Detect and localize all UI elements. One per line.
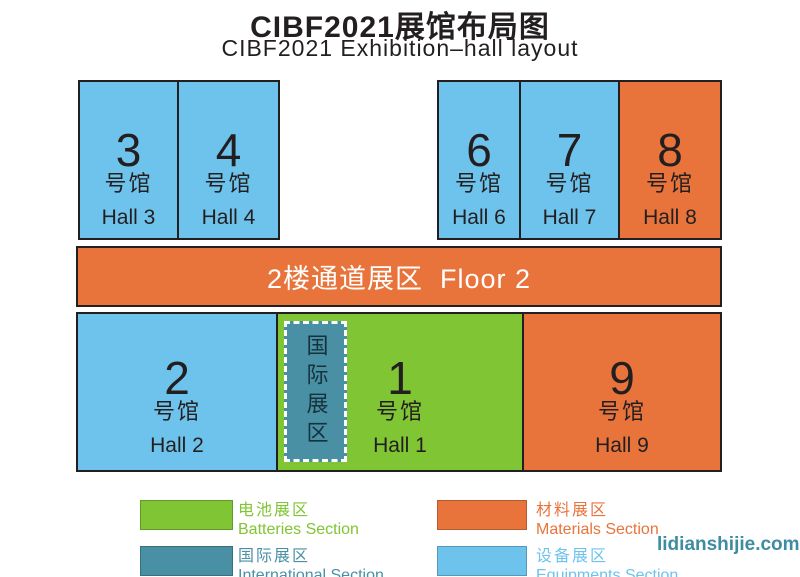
exhibition-layout-diagram: CIBF2021展馆布局图 CIBF2021 Exhibition–hall l…: [0, 0, 800, 577]
hall-1-number: 1: [387, 358, 413, 398]
hall-4-label: Hall 4: [202, 206, 256, 230]
page-subtitle: CIBF2021 Exhibition–hall layout: [0, 35, 800, 62]
hall-2-label: Hall 2: [150, 434, 204, 458]
hall-1-label: Hall 1: [373, 434, 427, 458]
hall-block-6-7-8: 6 号馆 Hall 6 7 号馆 Hall 7 8 号馆 Hall 8: [437, 80, 722, 240]
legend-label-international: 国际展区 International Section: [238, 547, 384, 577]
hall-1-unit: 号馆: [376, 398, 424, 425]
hall-4-number: 4: [216, 130, 242, 170]
international-area-box: 国际展区: [284, 321, 347, 462]
hall-4: 4 号馆 Hall 4: [179, 82, 278, 238]
hall-9-label: Hall 9: [595, 434, 649, 458]
hall-3-number: 3: [116, 130, 142, 170]
legend-international-cn: 国际展区: [238, 547, 384, 566]
legend-international-en: International Section: [238, 566, 384, 577]
hall-3: 3 号馆 Hall 3: [80, 82, 179, 238]
hall-8-unit: 号馆: [646, 170, 694, 197]
floor2-corridor-band: 2楼通道展区 Floor 2: [76, 246, 722, 307]
hall-9-unit: 号馆: [598, 398, 646, 425]
hall-3-label: Hall 3: [102, 206, 156, 230]
legend-swatch-batteries: [140, 500, 233, 530]
hall-7-number: 7: [557, 130, 583, 170]
hall-6: 6 号馆 Hall 6: [439, 82, 521, 238]
hall-8-number: 8: [657, 130, 683, 170]
hall-2-unit: 号馆: [153, 398, 201, 425]
hall-9: 9 号馆 Hall 9: [524, 314, 720, 470]
hall-3-unit: 号馆: [104, 170, 152, 197]
watermark-text: lidianshijie.com: [657, 534, 800, 556]
hall-7-unit: 号馆: [545, 170, 593, 197]
hall-block-2-1-9: 2 号馆 Hall 2 国际展区 1 号馆 Hall 1 9 号馆 Hall 9: [76, 312, 722, 472]
hall-block-3-4: 3 号馆 Hall 3 4 号馆 Hall 4: [78, 80, 280, 240]
hall-6-unit: 号馆: [455, 170, 503, 197]
hall-9-number: 9: [609, 358, 635, 398]
legend-equipments-en: Equipments Section: [536, 566, 678, 577]
legend-label-materials: 材料展区 Materials Section: [536, 501, 659, 539]
hall-4-unit: 号馆: [204, 170, 252, 197]
international-area-label: 国际展区: [300, 334, 332, 450]
hall-6-number: 6: [466, 130, 492, 170]
hall-7: 7 号馆 Hall 7: [521, 82, 620, 238]
hall-2-number: 2: [164, 358, 190, 398]
legend-materials-cn: 材料展区: [536, 501, 659, 520]
legend-swatch-international: [140, 546, 233, 576]
legend-materials-en: Materials Section: [536, 520, 659, 539]
legend-swatch-equipments: [437, 546, 527, 576]
hall-7-label: Hall 7: [543, 206, 597, 230]
legend-label-batteries: 电池展区 Batteries Section: [238, 501, 359, 539]
legend-swatch-materials: [437, 500, 527, 530]
hall-8: 8 号馆 Hall 8: [620, 82, 720, 238]
hall-2: 2 号馆 Hall 2: [78, 314, 278, 470]
legend-batteries-en: Batteries Section: [238, 520, 359, 539]
hall-1: 国际展区 1 号馆 Hall 1: [278, 314, 524, 470]
floor2-label: 2楼通道展区 Floor 2: [267, 257, 531, 296]
hall-6-label: Hall 6: [452, 206, 506, 230]
legend-batteries-cn: 电池展区: [238, 501, 359, 520]
hall-8-label: Hall 8: [643, 206, 697, 230]
